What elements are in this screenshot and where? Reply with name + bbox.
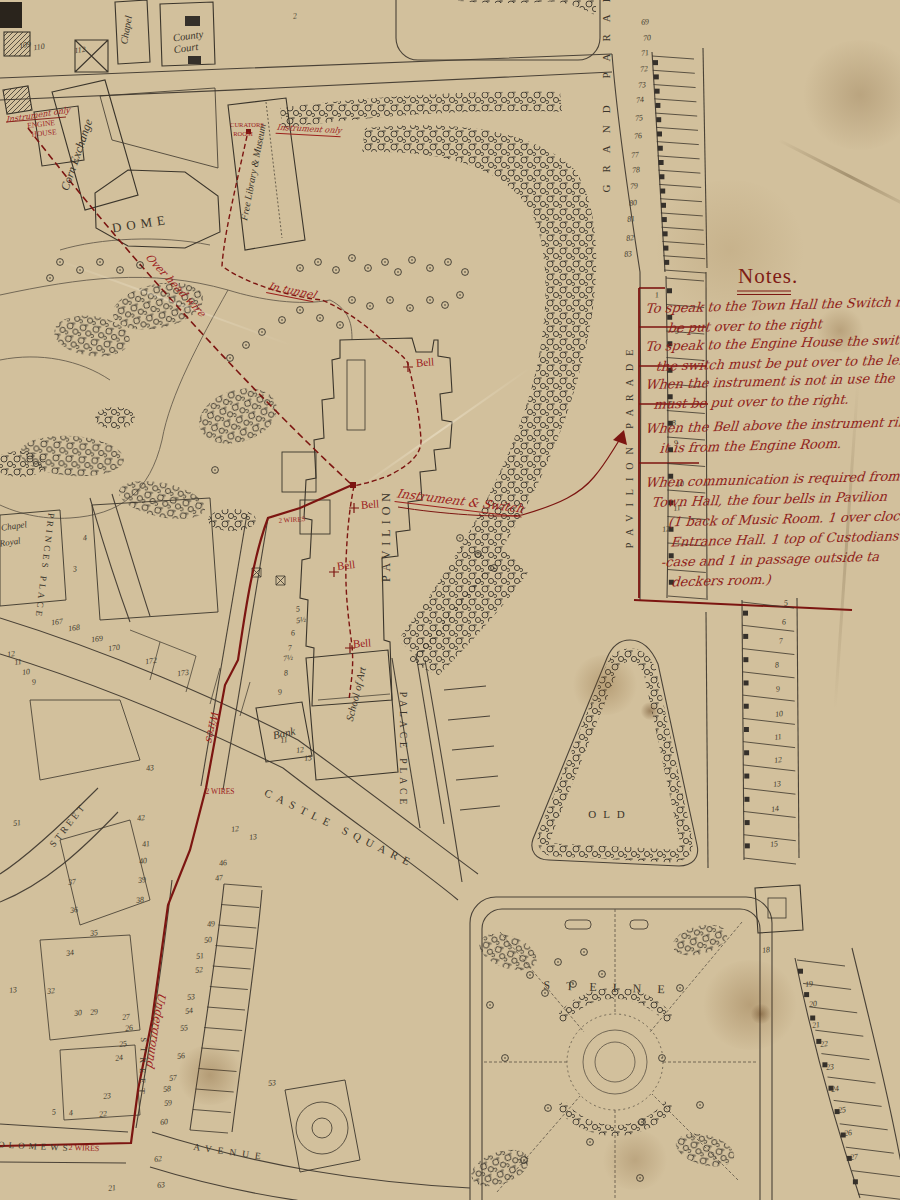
map-linework xyxy=(0,0,900,1200)
antique-map-photo: ChapelCountyCourtCorn ExchangeDOMEFree L… xyxy=(0,0,900,1200)
shrubbery xyxy=(0,0,738,1193)
garden-paths xyxy=(0,239,758,1200)
buildings xyxy=(0,0,803,1172)
